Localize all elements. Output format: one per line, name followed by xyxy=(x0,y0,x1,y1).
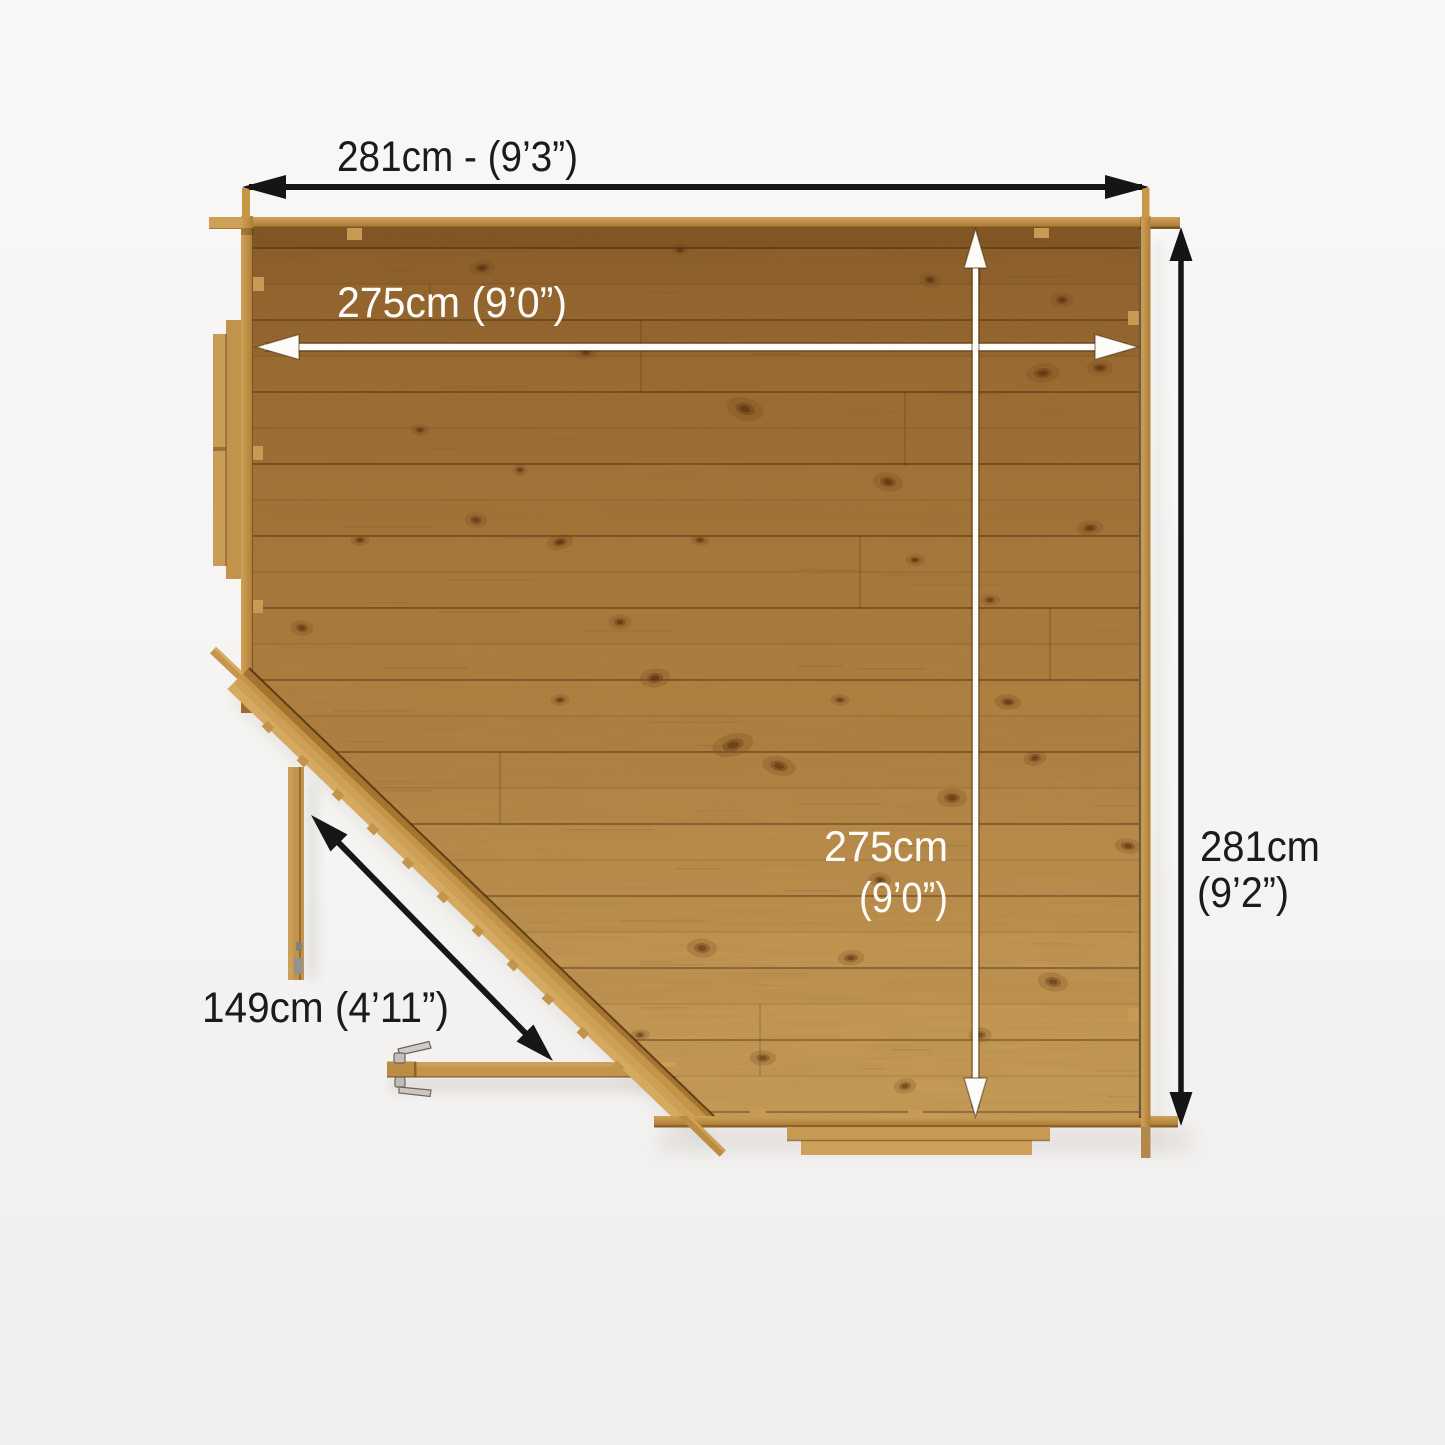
svg-text:(9’0”): (9’0”) xyxy=(859,874,948,922)
svg-text:281cm: 281cm xyxy=(1200,823,1320,871)
svg-text:149cm (4’11”): 149cm (4’11”) xyxy=(202,984,449,1032)
svg-text:(9’2”): (9’2”) xyxy=(1197,869,1289,917)
svg-text:275cm (9’0”): 275cm (9’0”) xyxy=(337,279,567,327)
svg-text:275cm: 275cm xyxy=(824,823,948,871)
svg-text:281cm - (9’3”): 281cm - (9’3”) xyxy=(337,133,578,181)
